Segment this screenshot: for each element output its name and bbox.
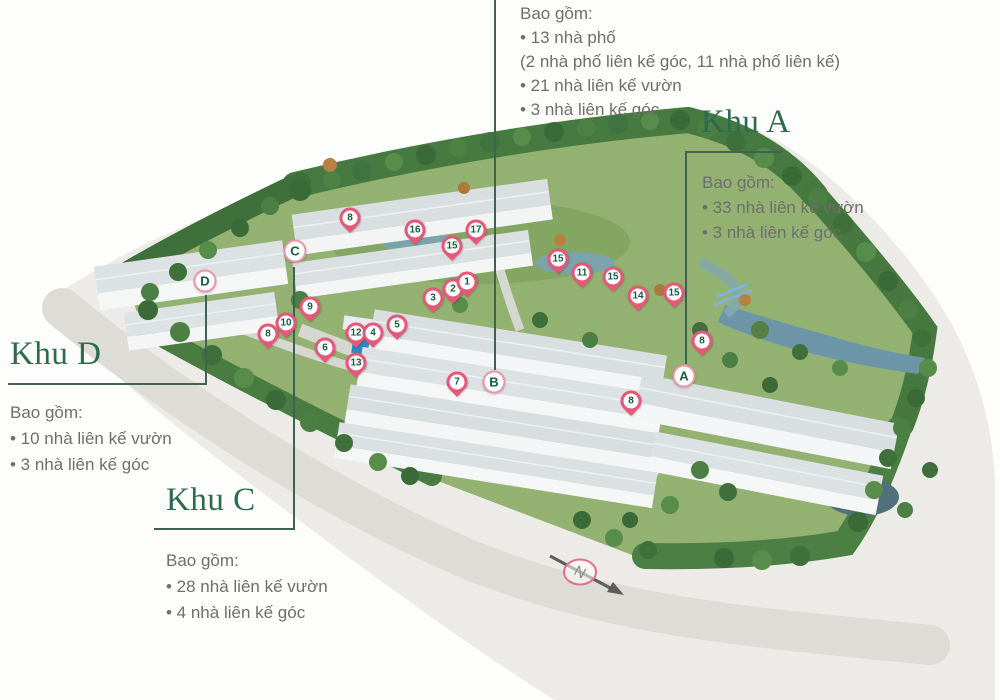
map-pin-6[interactable]: 6 (314, 337, 337, 360)
map-pin-15[interactable]: 15 (602, 266, 625, 289)
map-pin-13[interactable]: 13 (345, 352, 368, 375)
map-pin-15[interactable]: 15 (547, 248, 570, 271)
map-pin-1[interactable]: 1 (456, 271, 479, 294)
map-pin-d[interactable]: D (194, 270, 217, 293)
map-pin-8[interactable]: 8 (691, 330, 714, 353)
map-pin-8[interactable]: 8 (620, 390, 643, 413)
map-pin-b[interactable]: B (483, 371, 506, 394)
map-pin-15[interactable]: 15 (663, 282, 686, 305)
map-pin-17[interactable]: 17 (465, 219, 488, 242)
map-pins-layer: 816171515111514158CD910812453216137B8A (0, 0, 1000, 700)
map-pin-c[interactable]: C (284, 240, 307, 263)
map-pin-8[interactable]: 8 (257, 323, 280, 346)
map-pin-a[interactable]: A (673, 365, 696, 388)
map-pin-8[interactable]: 8 (339, 207, 362, 230)
masterplan-scene: Bao gồm: • 13 nhà phố (2 nhà phố liên kế… (0, 0, 1000, 700)
map-pin-14[interactable]: 14 (627, 285, 650, 308)
map-pin-11[interactable]: 11 (571, 262, 594, 285)
map-pin-4[interactable]: 4 (362, 322, 385, 345)
north-compass: N (535, 545, 635, 605)
north-arrow-head (607, 582, 624, 595)
map-pin-15[interactable]: 15 (441, 235, 464, 258)
map-pin-16[interactable]: 16 (404, 219, 427, 242)
map-pin-9[interactable]: 9 (299, 296, 322, 319)
map-pin-5[interactable]: 5 (386, 314, 409, 337)
map-pin-7[interactable]: 7 (446, 371, 469, 394)
